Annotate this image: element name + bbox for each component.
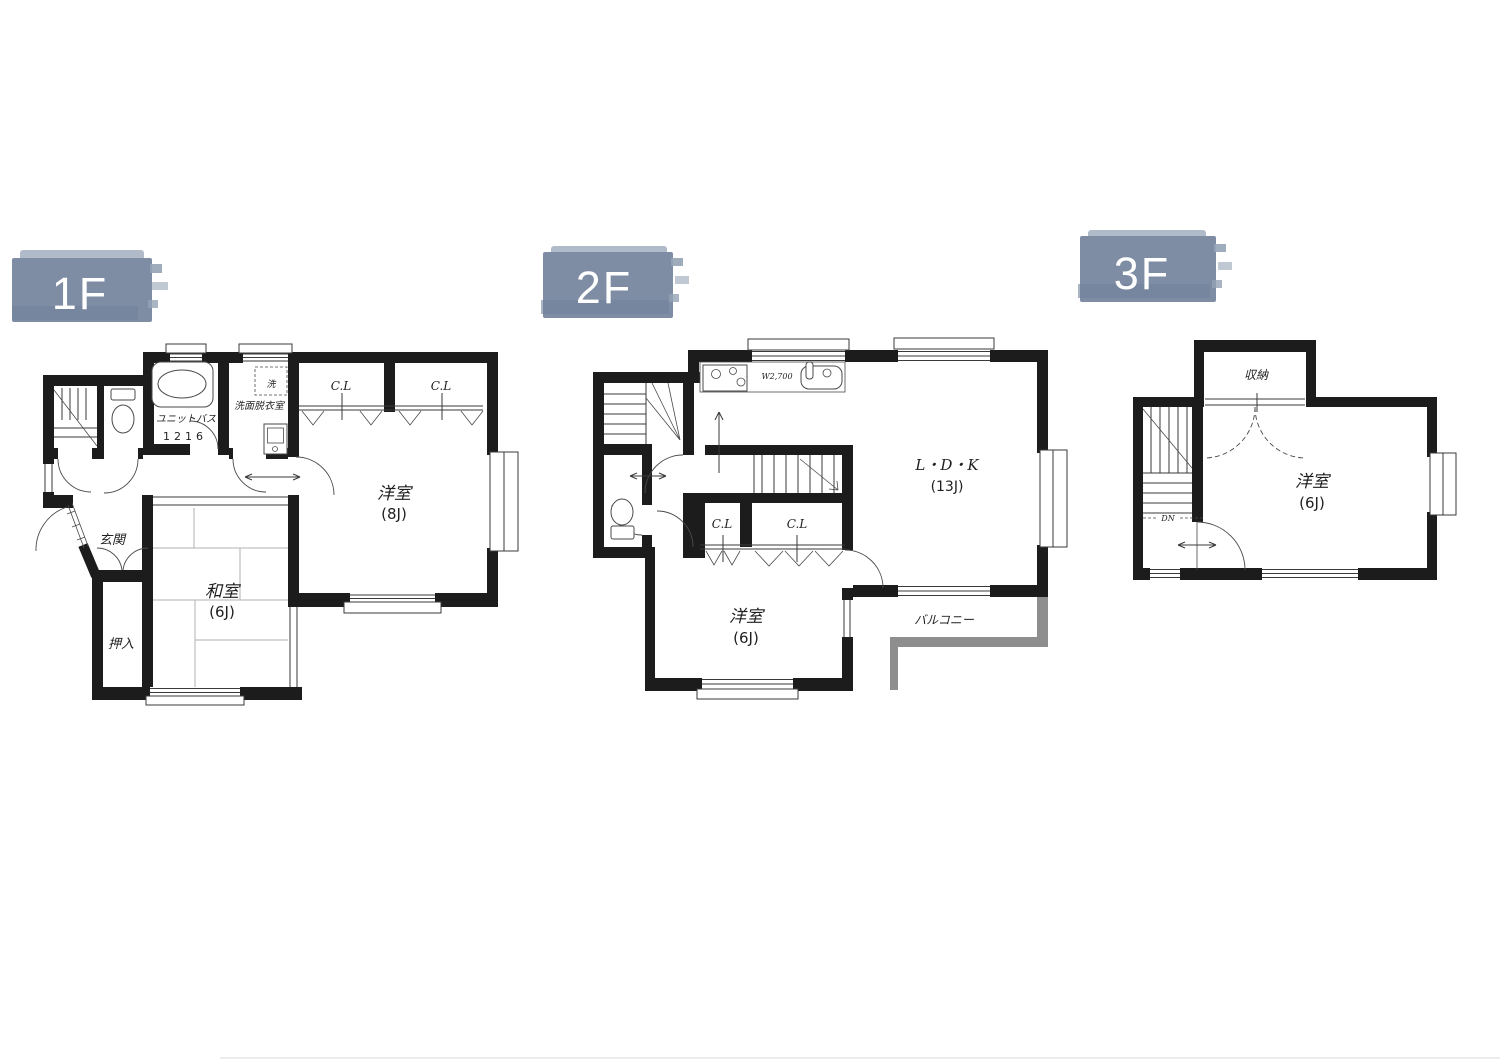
- closet-label-right-2f: C.L: [787, 517, 808, 531]
- vanity-sink-icon: [264, 424, 287, 454]
- shoe-cabinet-doors-1f: [97, 548, 148, 570]
- bathtub-icon: [152, 362, 213, 407]
- washitsu-sliding-door: [153, 497, 288, 505]
- room-label-senmen: 洗面脱衣室: [234, 400, 286, 412]
- room-label-unit-bath: ユニットバス: [156, 413, 216, 425]
- kitchen-width-label: W2,700: [761, 372, 792, 381]
- room-label-genkan: 玄関: [99, 533, 127, 548]
- laundry-mark: 洗: [266, 379, 276, 390]
- closet-label-left-1f: C.L: [331, 379, 352, 393]
- room-label-yoshitsu-3f: 洋室: [1295, 472, 1332, 492]
- closets-2f: [700, 535, 845, 566]
- room-label-shunou: 収納: [1244, 368, 1269, 382]
- stairs-1f: [54, 388, 97, 446]
- doors-3f: [1178, 522, 1245, 570]
- room-label-yoshitsu-2f: 洋室: [729, 607, 766, 627]
- page-bottom-crop-artifact: [220, 1057, 1500, 1059]
- balcony-walls-2f: [890, 597, 1048, 690]
- washitsu-side-window: [290, 607, 297, 687]
- closet-label-left-2f: C.L: [712, 517, 733, 531]
- stairs-dn-label: DN: [1160, 514, 1175, 523]
- room-size-ldk: (13J): [931, 479, 964, 495]
- closet-label-right-1f: C.L: [431, 379, 452, 393]
- toilet-icon-2f: [611, 499, 634, 539]
- balcony-side-window: [844, 600, 850, 637]
- floor-plan-3f: 3F: [1078, 230, 1456, 580]
- room-label-ldk: L・D・K: [914, 456, 979, 474]
- badge-2f: 2F: [541, 246, 689, 318]
- storage-doors-3f: [1204, 393, 1306, 458]
- room-size-yoshitsu-2f: (6J): [733, 629, 759, 647]
- badge-1f: 1F: [12, 250, 168, 322]
- room-size-yoshitsu-3f: (6J): [1299, 494, 1325, 512]
- walls-3f: [1133, 340, 1437, 580]
- room-size-yoshitsu-1f: (8J): [381, 505, 407, 523]
- floor-plan-canvas: 1F: [0, 0, 1500, 1061]
- stair-direction-arrow-2f: [715, 412, 723, 473]
- badge-3f-label: 3F: [1114, 248, 1171, 299]
- entrance-door-1f: [36, 503, 88, 551]
- room-label-yoshitsu-1f: 洋室: [377, 484, 414, 504]
- stairs-up-2f: [754, 455, 834, 493]
- badge-3f: 3F: [1078, 230, 1232, 302]
- toilet-icon-1f: [111, 389, 135, 433]
- room-label-washitsu: 和室: [205, 582, 242, 602]
- floor-plan-1f: 1F: [12, 250, 518, 705]
- unit-bath-size: 1216: [163, 430, 207, 443]
- room-size-washitsu: (6J): [209, 603, 235, 621]
- floor-plan-2f: 2F: [541, 246, 1067, 699]
- badge-1f-label: 1F: [52, 268, 109, 319]
- room-label-oshiire: 押入: [108, 637, 134, 652]
- badge-2f-label: 2F: [576, 262, 633, 313]
- room-label-balcony: バルコニー: [914, 613, 975, 627]
